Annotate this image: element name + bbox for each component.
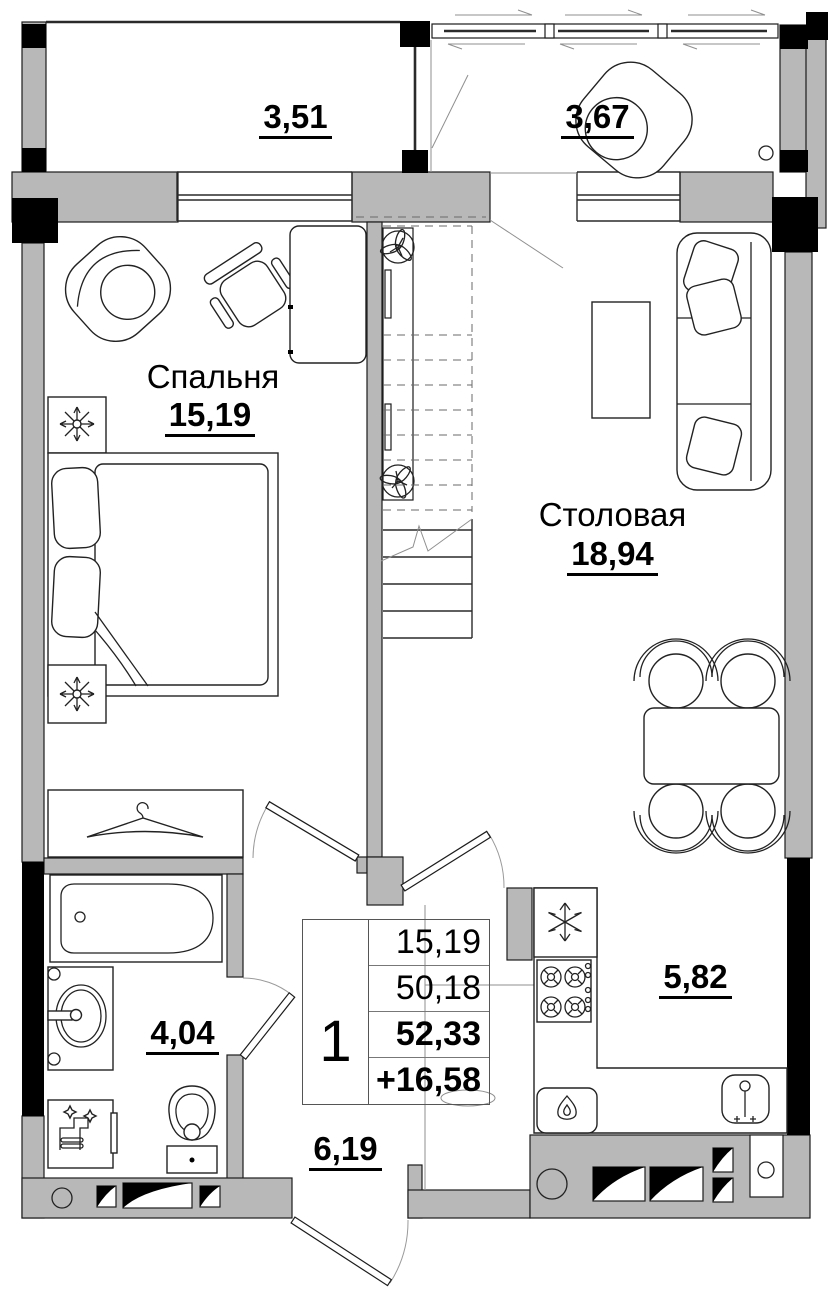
nightstand-icon (48, 397, 106, 453)
wall-segment (680, 172, 773, 222)
wall-segment (507, 888, 532, 960)
dining-name-label: Столовая (515, 498, 710, 533)
dining-area-text: 18,94 (567, 537, 658, 576)
chair-icon (634, 784, 718, 853)
dining-set (634, 639, 790, 853)
lamp-star-icon (60, 677, 94, 711)
door-swing-arc (489, 834, 504, 888)
wall-segment (44, 858, 243, 874)
door-swing-arc (253, 805, 268, 858)
office-chair-icon (196, 236, 302, 339)
door-bedroom (253, 802, 359, 861)
stair-handrail (385, 404, 391, 450)
column (400, 21, 430, 47)
kitchen-area-text: 5,82 (659, 960, 731, 999)
desk-icon (288, 226, 366, 363)
bathroom-area-text: 4,04 (146, 1016, 218, 1055)
window-bedroom (177, 172, 352, 221)
wall-segment (22, 243, 44, 862)
door-entry (291, 1217, 408, 1286)
bathroom-area-label: 4,04 (125, 1016, 240, 1055)
chair-icon (634, 639, 718, 708)
kitchen-sink-icon (722, 1075, 769, 1123)
hallway-area-text: 6,19 (309, 1132, 381, 1171)
lamp-star-icon (60, 407, 94, 441)
balcony-right-area-label: 3,67 (540, 100, 655, 139)
nightstand-icon (48, 665, 106, 723)
column (402, 150, 428, 173)
unit-area-without-summer: 50,18 (369, 966, 489, 1012)
door-leaf (291, 1217, 391, 1286)
hallway-area-label: 6,19 (288, 1132, 403, 1171)
stove-icon (537, 960, 591, 1022)
wall-segment (367, 222, 382, 857)
door-dining (401, 831, 504, 891)
kitchen-area-label: 5,82 (638, 960, 753, 999)
tv-stand-icon (592, 302, 650, 418)
wall-segment (367, 857, 403, 905)
stair-treads-lower (383, 519, 472, 638)
column (12, 198, 58, 243)
bedroom-area-text: 15,19 (165, 398, 256, 437)
unit-summer-area: +16,58 (369, 1058, 489, 1104)
unit-rooms-count: 1 (303, 920, 369, 1104)
wall-segment (408, 1190, 530, 1218)
chair-icon (706, 784, 790, 853)
bed-icon (48, 453, 278, 696)
door-leaf (401, 831, 490, 891)
washing-machine-icon (48, 1100, 117, 1168)
door-leaf (240, 993, 294, 1059)
stair-break-line (381, 519, 472, 561)
balcony-left-area-text: 3,51 (259, 100, 331, 139)
balcony-drain-icon (759, 146, 773, 160)
door-swing-arc (390, 1220, 408, 1283)
balcony-door-swing-line (432, 75, 468, 148)
column (780, 25, 808, 49)
washbasin-icon (48, 967, 113, 1070)
column (780, 150, 808, 172)
balcony-right-area-text: 3,67 (561, 100, 633, 139)
unit-total-area: 52,33 (369, 1012, 489, 1058)
column (787, 858, 810, 1135)
wall-segment (785, 252, 812, 858)
wall-segment (227, 1055, 243, 1180)
apartment-floor-plan: 3,51 3,67 Спальня 15,19 Столовая 18,94 4… (0, 0, 828, 1291)
dining-area-label: 18,94 (545, 537, 680, 576)
column (22, 148, 46, 172)
dining-door-swing-line (490, 220, 563, 268)
fridge-icon (534, 888, 597, 957)
bedroom-area-label: 15,19 (140, 398, 280, 437)
chair-icon (706, 639, 790, 708)
bedroom-name-label: Спальня (128, 360, 298, 395)
door-swing-arc (243, 978, 292, 995)
water-heater-icon (537, 1088, 597, 1133)
sofa-icon (677, 233, 771, 490)
unit-info-table: 1 15,19 50,18 52,33 +16,58 (302, 919, 490, 1105)
balcony-left-railing (46, 22, 431, 172)
sliding-window-balcony-right (432, 10, 778, 49)
window-dining (577, 172, 680, 221)
staircase (380, 226, 472, 638)
door-leaf (266, 802, 359, 861)
wardrobe-icon (48, 790, 243, 857)
toilet-icon (167, 1086, 217, 1173)
column (22, 862, 44, 1116)
dining-table-icon (644, 708, 779, 784)
wall-segment (227, 874, 243, 977)
unit-living-area: 15,19 (369, 920, 489, 966)
balcony-left-area-label: 3,51 (238, 100, 353, 139)
column (806, 12, 828, 40)
stair-planter (383, 228, 413, 500)
armchair-icon (52, 223, 185, 356)
column (772, 197, 818, 252)
unit-areas: 15,19 50,18 52,33 +16,58 (369, 920, 489, 1104)
wall-segment (352, 172, 490, 222)
wall-recess (750, 1135, 783, 1197)
stair-handrail (385, 270, 391, 318)
door-bathroom (240, 978, 294, 1059)
column (22, 24, 46, 48)
bathtub-icon (50, 875, 222, 962)
wall-segment (357, 857, 367, 873)
